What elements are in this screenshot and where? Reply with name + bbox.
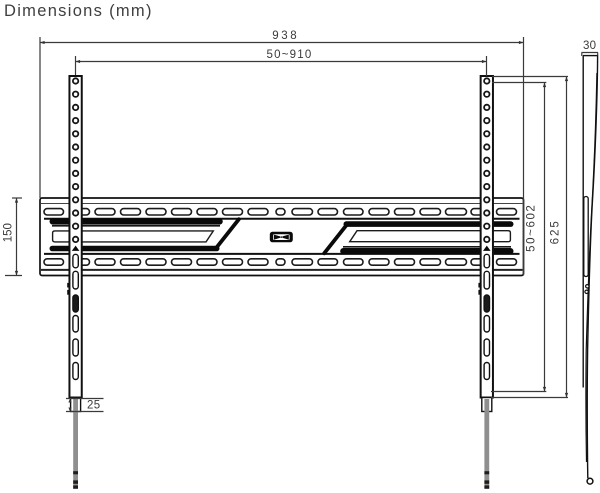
svg-text:150: 150	[2, 223, 14, 242]
svg-text:50~910: 50~910	[267, 49, 313, 61]
svg-text:50~602: 50~602	[526, 204, 538, 252]
svg-text:Dimensions (mm): Dimensions (mm)	[4, 2, 153, 20]
svg-text:625: 625	[550, 219, 562, 244]
svg-text:938: 938	[272, 30, 299, 42]
svg-text:30: 30	[583, 40, 596, 52]
svg-text:25: 25	[87, 400, 100, 412]
